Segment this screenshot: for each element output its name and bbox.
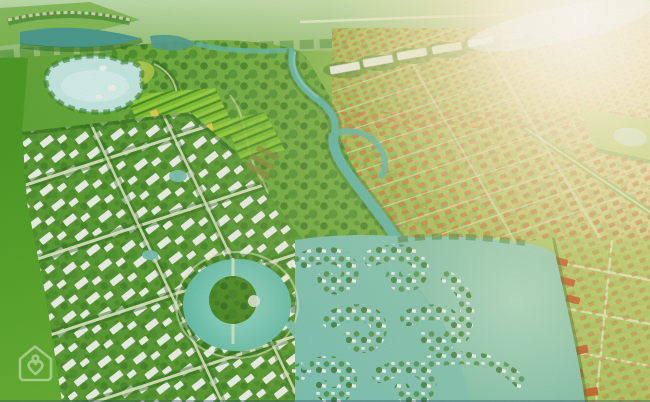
masterplan-render	[0, 0, 650, 402]
grain-overlay	[0, 0, 650, 402]
render-canvas	[0, 0, 650, 402]
